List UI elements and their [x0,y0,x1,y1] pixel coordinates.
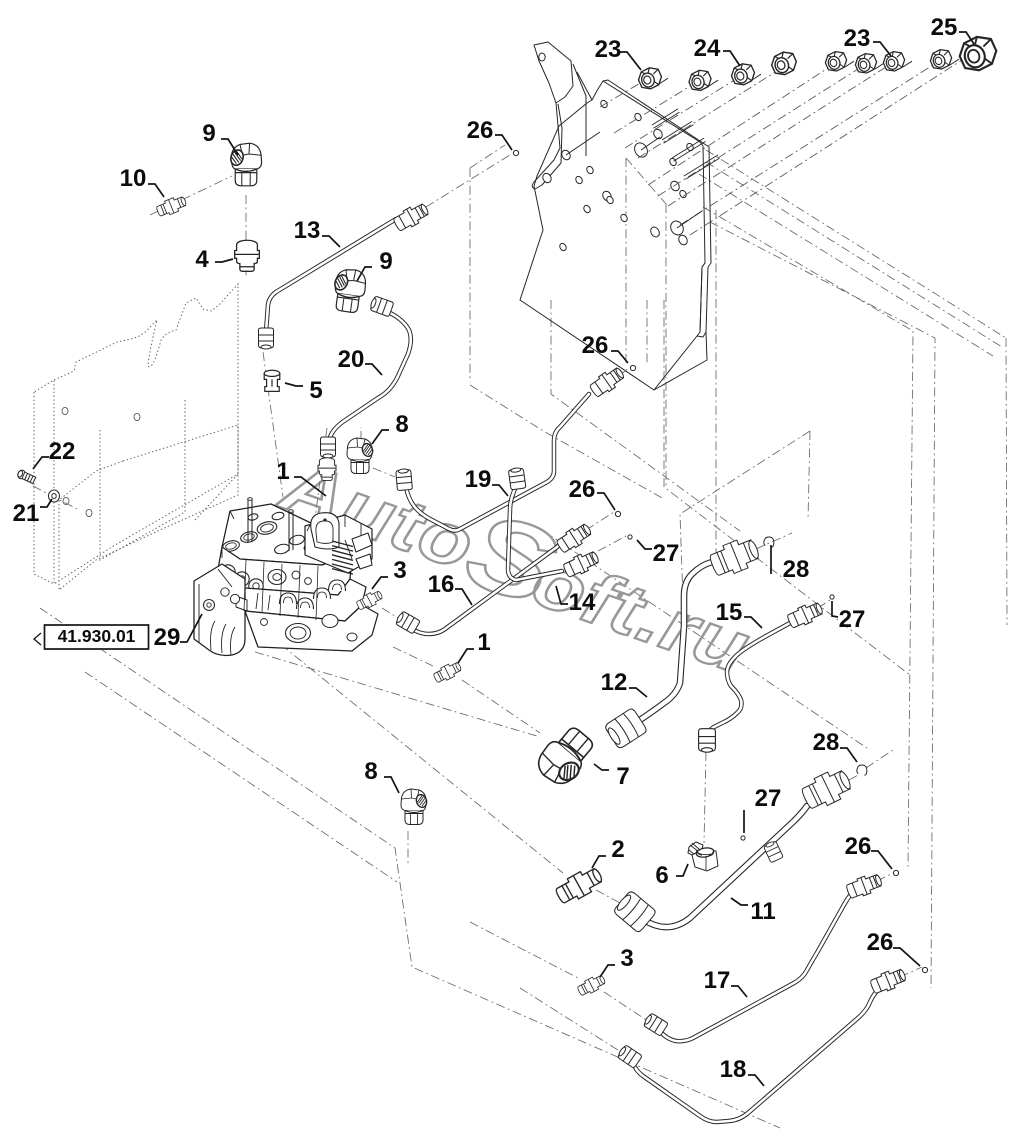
svg-text:28: 28 [813,729,840,756]
svg-text:3: 3 [393,557,406,584]
svg-text:11: 11 [750,898,775,925]
svg-text:20: 20 [338,346,365,373]
svg-text:26: 26 [845,833,872,860]
svg-text:41.930.01: 41.930.01 [58,626,136,646]
svg-text:8: 8 [395,411,408,438]
svg-text:2: 2 [611,836,624,863]
svg-text:26: 26 [467,117,494,144]
svg-text:17: 17 [704,967,731,994]
svg-text:7: 7 [616,763,629,790]
svg-text:9: 9 [379,248,392,275]
svg-text:1: 1 [477,629,490,656]
svg-text:5: 5 [309,377,322,404]
svg-text:4: 4 [195,246,209,273]
svg-text:8: 8 [364,758,377,785]
svg-text:27: 27 [755,785,782,812]
svg-text:25: 25 [931,14,958,41]
svg-text:1: 1 [276,458,289,485]
svg-text:13: 13 [294,217,321,244]
svg-text:10: 10 [120,165,147,192]
svg-text:28: 28 [783,556,810,583]
svg-text:26: 26 [582,332,609,359]
svg-text:23: 23 [844,25,871,52]
svg-text:21: 21 [13,500,40,527]
svg-text:12: 12 [601,669,628,696]
svg-text:22: 22 [49,438,76,465]
svg-text:23: 23 [595,36,622,63]
svg-text:18: 18 [720,1056,747,1083]
svg-text:15: 15 [716,599,743,626]
svg-text:26: 26 [569,476,596,503]
svg-text:29: 29 [154,624,181,651]
svg-text:16: 16 [428,571,455,598]
svg-text:9: 9 [202,120,215,147]
svg-text:27: 27 [653,540,680,567]
svg-text:14: 14 [569,589,596,616]
svg-text:26: 26 [867,929,894,956]
svg-text:19: 19 [465,466,492,493]
svg-text:6: 6 [655,862,668,889]
svg-text:27: 27 [839,606,866,633]
svg-text:24: 24 [694,35,721,62]
svg-text:3: 3 [620,945,633,972]
